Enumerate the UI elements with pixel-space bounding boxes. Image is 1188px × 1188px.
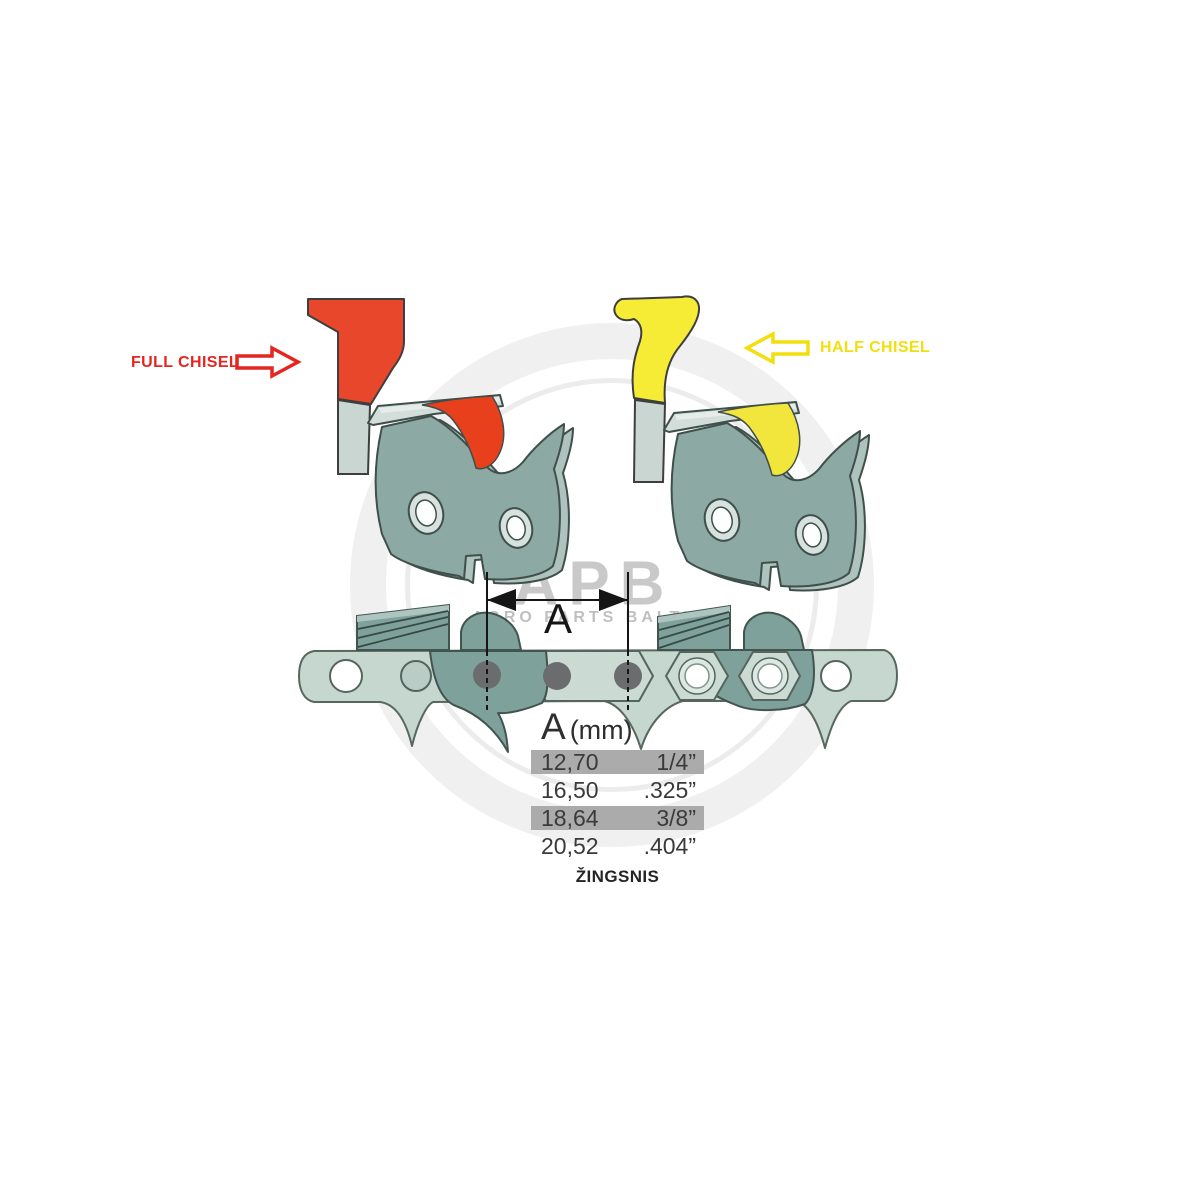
dimension-arrowhead-right-icon [599,589,628,611]
chain-hole [330,660,362,692]
chain-illustration [0,0,1188,1188]
chain-cutter-right-depth-gauge [744,613,804,650]
full-chisel-cutter-link [368,395,573,583]
full-chisel-profile-shape [308,299,404,404]
table-row: 18,64 3/8” [531,806,704,830]
chain-hole [685,664,709,688]
chainsaw-chain-pitch-diagram: APB AGRO PARTS BALTIJA [0,0,1188,1188]
chain-rivet-center [543,662,571,690]
dimension-arrowhead-left-icon [487,589,516,611]
chain-hole-filled [401,661,431,691]
chain-hole [821,661,851,691]
pitch-inch: .404” [644,833,696,860]
dimension-a-label: A [544,595,572,643]
pitch-table-header-unit: (mm) [570,715,633,745]
chain-rivet-left [473,661,501,689]
pitch-inch: 3/8” [656,805,696,832]
half-chisel-profile-shape [614,296,699,403]
pitch-inch: .325” [644,777,696,804]
chain-cutter-left-depth-gauge [461,613,521,650]
half-chisel-cutter-link [664,402,869,590]
pitch-mm: 20,52 [541,833,599,860]
half-chisel-label: HALF CHISEL [820,339,930,357]
half-chisel-shank [634,400,665,482]
chain-hole [758,664,782,688]
table-row: 12,70 1/4” [531,750,704,774]
half-chisel-arrow-icon [747,334,808,362]
pitch-mm: 16,50 [541,777,599,804]
pitch-table-header-symbol: A [541,706,566,747]
full-chisel-arrow-icon [237,348,298,376]
pitch-inch: 1/4” [656,749,696,776]
pitch-caption: ŽINGSNIS [531,867,704,887]
table-row: 16,50 .325” [531,778,704,802]
pitch-table-header: A(mm) [531,706,704,750]
pitch-table: A(mm) 12,70 1/4” 16,50 .325” 18,64 3/8” … [531,706,704,887]
pitch-mm: 12,70 [541,749,599,776]
full-chisel-label: FULL CHISEL [131,354,239,372]
full-chisel-shank [338,400,370,474]
table-row: 20,52 .404” [531,834,704,858]
pitch-mm: 18,64 [541,805,599,832]
chain-rivet-right [614,662,642,690]
